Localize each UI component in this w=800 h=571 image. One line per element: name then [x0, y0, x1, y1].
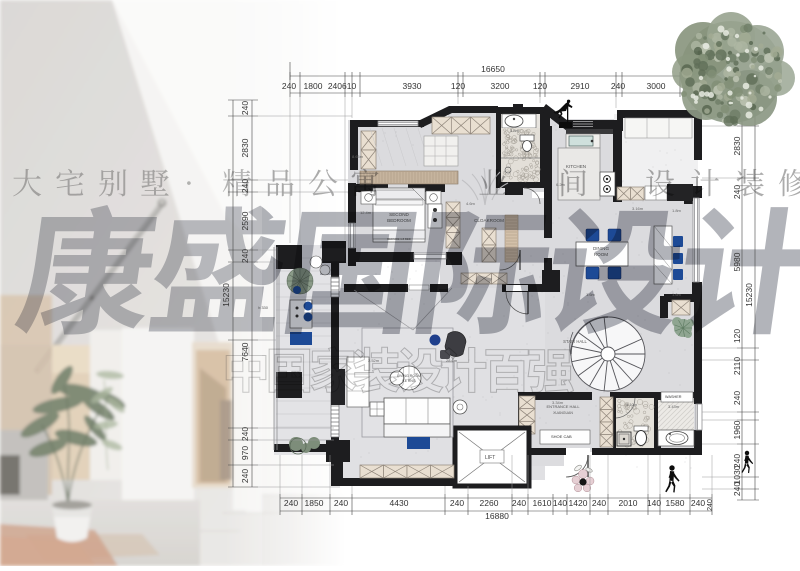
svg-text:3930: 3930: [403, 81, 422, 91]
svg-text:3.34m: 3.34m: [552, 400, 564, 405]
svg-text:240: 240: [240, 179, 250, 193]
svg-text:240: 240: [240, 249, 250, 263]
svg-text:970: 970: [240, 446, 250, 460]
svg-text:6.2m: 6.2m: [556, 182, 566, 187]
svg-text:1030: 1030: [732, 465, 742, 484]
svg-text:2590: 2590: [240, 211, 250, 230]
svg-text:3000: 3000: [647, 81, 666, 91]
svg-text:2910: 2910: [571, 81, 590, 91]
svg-text:KITCHEN: KITCHEN: [566, 164, 586, 169]
svg-text:15230: 15230: [221, 283, 231, 307]
svg-text:15230: 15230: [744, 283, 754, 307]
svg-text:3.16m: 3.16m: [632, 206, 644, 211]
svg-text:240: 240: [732, 185, 742, 199]
svg-text:240: 240: [732, 482, 742, 496]
svg-text:WASHER: WASHER: [665, 395, 682, 399]
svg-text:240: 240: [240, 469, 250, 483]
svg-text:240: 240: [240, 427, 250, 441]
svg-text:120: 120: [732, 329, 742, 343]
svg-text:SHOE CAB: SHOE CAB: [551, 434, 572, 439]
svg-text:240: 240: [732, 391, 742, 405]
svg-text:1.6m: 1.6m: [672, 292, 682, 297]
svg-text:2010: 2010: [619, 498, 638, 508]
svg-text:4.10m: 4.10m: [626, 402, 638, 407]
svg-text:140: 140: [553, 498, 567, 508]
svg-text:240: 240: [592, 498, 606, 508]
svg-text:240: 240: [450, 498, 464, 508]
svg-text:1850: 1850: [305, 498, 324, 508]
svg-text:140: 140: [647, 498, 661, 508]
svg-text:240: 240: [707, 499, 714, 511]
svg-text:2830: 2830: [240, 138, 250, 157]
svg-text:8.65m: 8.65m: [352, 154, 364, 159]
svg-text:240: 240: [512, 498, 526, 508]
svg-text:XUANGUAN: XUANGUAN: [553, 411, 573, 415]
svg-text:240: 240: [691, 498, 705, 508]
svg-text:1800: 1800: [304, 81, 323, 91]
svg-text:120: 120: [533, 81, 547, 91]
svg-text:2110: 2110: [732, 357, 742, 376]
svg-text:7640: 7640: [240, 342, 250, 361]
svg-text:240: 240: [240, 101, 250, 115]
svg-text:3.43m: 3.43m: [668, 404, 680, 409]
svg-text:1420: 1420: [569, 498, 588, 508]
svg-text:4430: 4430: [390, 498, 409, 508]
svg-text:240: 240: [284, 498, 298, 508]
svg-text:5980: 5980: [732, 252, 742, 271]
svg-text:3.8m: 3.8m: [510, 128, 520, 133]
svg-text:120: 120: [451, 81, 465, 91]
svg-text:4.6m: 4.6m: [466, 201, 476, 206]
svg-text:STAIR HALL: STAIR HALL: [563, 339, 587, 344]
svg-text:16880: 16880: [485, 511, 509, 521]
svg-text:240: 240: [334, 498, 348, 508]
svg-text:2830: 2830: [732, 136, 742, 155]
svg-text:16650: 16650: [481, 64, 505, 74]
svg-text:1580: 1580: [666, 498, 685, 508]
svg-text:240: 240: [611, 81, 625, 91]
svg-text:LIFT: LIFT: [485, 455, 495, 461]
svg-text:1.8m: 1.8m: [672, 208, 682, 213]
svg-text:1610: 1610: [533, 498, 552, 508]
svg-text:1960: 1960: [732, 420, 742, 439]
svg-text:240610: 240610: [328, 81, 357, 91]
svg-text:2260: 2260: [480, 498, 499, 508]
svg-text:240: 240: [282, 81, 296, 91]
svg-text:3200: 3200: [491, 81, 510, 91]
